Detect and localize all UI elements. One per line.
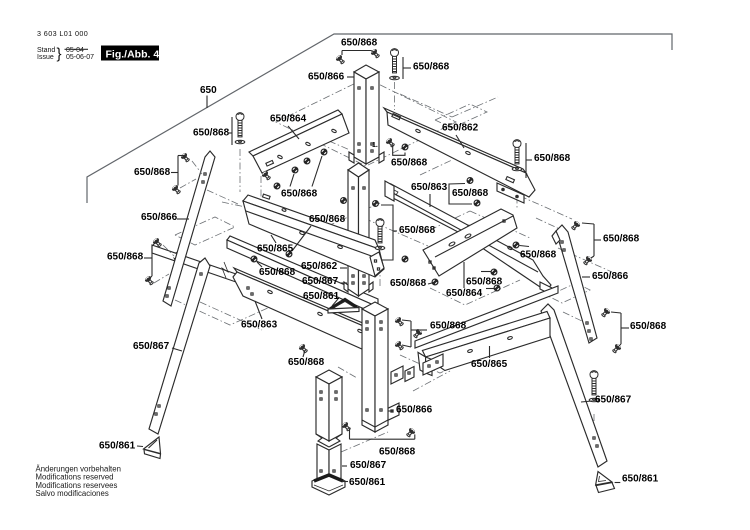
svg-text:Issue: Issue <box>37 54 54 61</box>
svg-text:650/866: 650/866 <box>396 405 433 416</box>
svg-text:650/867: 650/867 <box>595 395 632 406</box>
svg-text:Fig./Abb. 4: Fig./Abb. 4 <box>106 48 160 60</box>
svg-text:650/864: 650/864 <box>270 114 307 125</box>
svg-text:650/868: 650/868 <box>391 158 428 169</box>
svg-text:650/866: 650/866 <box>592 271 629 282</box>
svg-text:650/865: 650/865 <box>257 244 294 255</box>
svg-text:650: 650 <box>200 85 217 96</box>
svg-text:650/868: 650/868 <box>341 38 378 49</box>
svg-text:650/867: 650/867 <box>133 341 170 352</box>
svg-text:650/868: 650/868 <box>259 267 296 278</box>
svg-text:650/867: 650/867 <box>302 276 339 287</box>
svg-text:650/861: 650/861 <box>622 474 659 485</box>
svg-text:650/868: 650/868 <box>413 62 450 73</box>
svg-text:Salvo modificaciones: Salvo modificaciones <box>36 489 109 498</box>
svg-text:05-04: 05-04 <box>66 47 84 54</box>
svg-text:650/868: 650/868 <box>520 250 557 261</box>
svg-text:05-06-07: 05-06-07 <box>66 54 94 61</box>
svg-text:650/862: 650/862 <box>301 261 338 272</box>
svg-text:650/863: 650/863 <box>411 182 448 193</box>
svg-text:650/868: 650/868 <box>630 321 667 332</box>
svg-text:650/861: 650/861 <box>349 477 386 488</box>
svg-text:650/868: 650/868 <box>281 189 318 200</box>
svg-text:650/868: 650/868 <box>466 277 503 288</box>
svg-text:650/868: 650/868 <box>107 252 144 263</box>
svg-text:650/868: 650/868 <box>379 447 416 458</box>
svg-text:650/867: 650/867 <box>350 460 387 471</box>
svg-text:650/862: 650/862 <box>442 123 479 134</box>
svg-text:650/865: 650/865 <box>471 359 508 370</box>
svg-text:650/866: 650/866 <box>308 72 345 83</box>
svg-text:}: } <box>57 46 62 63</box>
svg-text:650/868: 650/868 <box>399 225 436 236</box>
svg-text:650/868: 650/868 <box>452 188 489 199</box>
svg-text:650/868: 650/868 <box>603 234 640 245</box>
svg-text:1.: 1. <box>372 142 378 149</box>
svg-text:650/861: 650/861 <box>303 291 340 302</box>
svg-text:650/864: 650/864 <box>446 288 483 299</box>
svg-text:650/868: 650/868 <box>390 278 427 289</box>
svg-text:3 603 L01 000: 3 603 L01 000 <box>37 29 88 38</box>
svg-text:650/863: 650/863 <box>241 320 278 331</box>
svg-text:650/868: 650/868 <box>309 214 346 225</box>
svg-text:650/866: 650/866 <box>141 212 178 223</box>
svg-text:650/868: 650/868 <box>134 167 171 178</box>
svg-text:Stand: Stand <box>37 47 55 54</box>
svg-text:650/861: 650/861 <box>99 441 136 452</box>
svg-text:650/868: 650/868 <box>430 321 467 332</box>
svg-text:650/868: 650/868 <box>534 153 571 164</box>
svg-text:650/868: 650/868 <box>288 357 325 368</box>
svg-text:650/868: 650/868 <box>193 128 230 139</box>
